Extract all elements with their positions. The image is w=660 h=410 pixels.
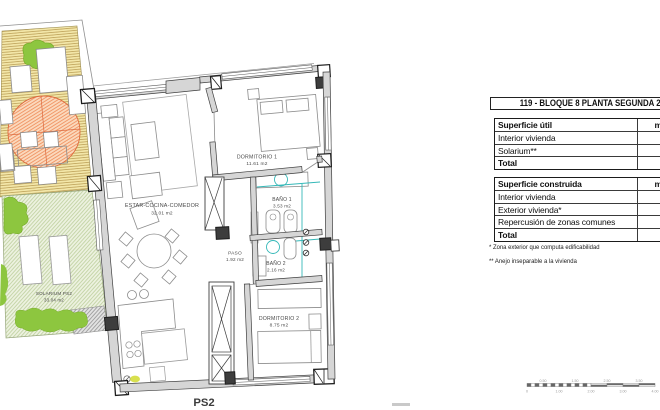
svg-text:2.00: 2.00: [588, 390, 595, 394]
svg-text:2.16 m2: 2.16 m2: [267, 268, 285, 273]
svg-text:2.50: 2.50: [604, 379, 611, 383]
svg-text:PASO: PASO: [228, 251, 242, 257]
svg-text:4.00: 4.00: [652, 390, 659, 394]
svg-text:1.50: 1.50: [572, 379, 579, 383]
svg-text:ESTAR-COCINA-COMEDOR: ESTAR-COCINA-COMEDOR: [125, 203, 199, 209]
svg-text:1.92 m2: 1.92 m2: [226, 257, 244, 262]
svg-text:SOLARIUM PS2: SOLARIUM PS2: [36, 291, 73, 296]
svg-text:32.01 m2: 32.01 m2: [151, 211, 173, 217]
svg-text:3.00: 3.00: [620, 390, 627, 394]
svg-text:1.00: 1.00: [556, 390, 563, 394]
svg-text:BAÑO 2: BAÑO 2: [266, 260, 286, 267]
svg-text:BAÑO 1: BAÑO 1: [272, 196, 292, 203]
svg-text:0: 0: [526, 390, 528, 394]
svg-text:8.75 m2: 8.75 m2: [270, 323, 289, 329]
svg-text:DORMITORIO 1: DORMITORIO 1: [237, 155, 277, 161]
svg-text:PS2: PS2: [193, 397, 214, 409]
svg-text:11.61 m2: 11.61 m2: [246, 161, 267, 167]
svg-text:DORMITORIO 2: DORMITORIO 2: [259, 316, 299, 322]
svg-text:3.50: 3.50: [636, 379, 643, 383]
svg-text:0.50: 0.50: [540, 379, 547, 383]
svg-text:33.04 m2: 33.04 m2: [44, 298, 64, 303]
svg-text:3.53 m2: 3.53 m2: [273, 204, 291, 209]
